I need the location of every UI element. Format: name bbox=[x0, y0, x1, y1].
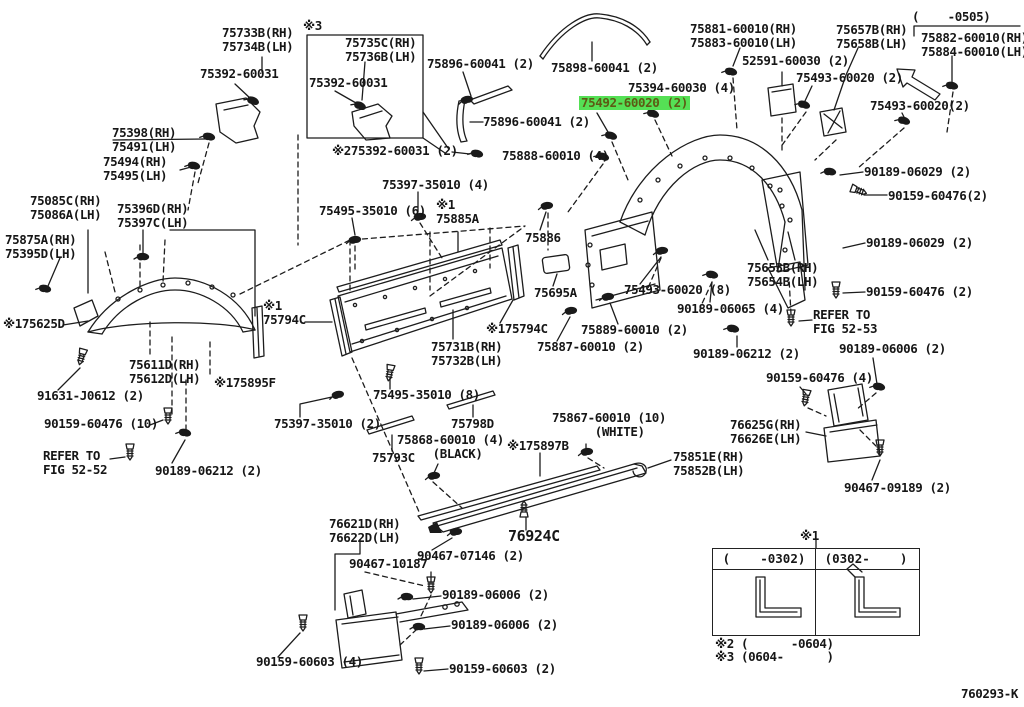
mark-175897: ※175897B bbox=[507, 439, 569, 453]
parts-diagram-page: 75733B(RH) 75734B(LH)※375735C(RH) 75736B… bbox=[0, 0, 1024, 707]
part-75731: 75731B(RH) 75732B(LH) bbox=[431, 340, 502, 367]
mark-175625: ※175625D bbox=[3, 317, 65, 331]
part-90159-60476-4r: 90159-60476 (4) bbox=[766, 371, 873, 385]
part-75851: 75851E(RH) 75852B(LH) bbox=[673, 450, 744, 477]
part-75085: 75085C(RH) 75086A(LH) bbox=[30, 194, 101, 221]
part-75898: 75898-60041 (2) bbox=[551, 61, 658, 75]
part-76625: 76625G(RH) 76626E(LH) bbox=[730, 418, 801, 445]
part-75392-b: 75392-60031 bbox=[309, 76, 387, 90]
part-75798: 75798D bbox=[451, 417, 494, 431]
part-75397-35010-4: 75397-35010 (4) bbox=[382, 178, 489, 192]
part-90159-60603-4: 90159-60603 (4) bbox=[256, 655, 363, 669]
figure-code: 760293-K bbox=[961, 687, 1018, 701]
part-75493-8: 75493-60020 (8) bbox=[624, 283, 731, 297]
part-75495-35010-6: 75495-35010 (6) bbox=[319, 204, 426, 218]
part-90189-06006-b2: 90189-06006 (2) bbox=[451, 618, 558, 632]
part-75492-highlighted[interactable]: 75492-60020 (2) bbox=[579, 96, 690, 110]
part-75657: 75657B(RH) 75658B(LH) bbox=[836, 23, 907, 50]
part-76621: 76621D(RH) 76622D(LH) bbox=[329, 517, 400, 544]
spec-note-3: ※3 (0604- ) bbox=[715, 650, 834, 664]
spec-col-left: ( -0302) bbox=[713, 551, 815, 566]
part-75875: 75875A(RH) 75395D(LH) bbox=[5, 233, 76, 260]
part-90189-06029-a: 90189-06029 (2) bbox=[864, 165, 971, 179]
part-75611: 75611D(RH) 75612D(LH) bbox=[129, 358, 200, 385]
part-75896-a: 75896-60041 (2) bbox=[427, 57, 534, 71]
spec-col-right: (0302- ) bbox=[815, 551, 917, 566]
mark-175895: ※175895F bbox=[214, 376, 276, 390]
range-0505: ( -0505) bbox=[912, 10, 990, 24]
part-76924: 76924C bbox=[508, 528, 560, 544]
part-90467-07146: 90467-07146 (2) bbox=[417, 549, 524, 563]
part-75794-left: ※1 75794C bbox=[263, 299, 306, 326]
part-75733: 75733B(RH) 75734B(LH) bbox=[222, 26, 293, 53]
part-75394: 75394-60030 (4) bbox=[628, 81, 735, 95]
part-91631: 91631-J0612 (2) bbox=[37, 389, 144, 403]
part-75882: 75882-60010(RH) 75884-60010(LH) bbox=[921, 31, 1024, 58]
spec-table: ( -0302) (0302- ) bbox=[712, 548, 920, 636]
part-75493-b: 75493-60020(2) bbox=[870, 99, 970, 113]
spec-table-header-rule bbox=[713, 569, 919, 570]
part-75397-35010-2: 75397-35010 (2) bbox=[274, 417, 381, 431]
part-90159-60603-2: 90159-60603 (2) bbox=[449, 662, 556, 676]
part-275392: ※275392-60031 (2) bbox=[332, 144, 458, 158]
part-75495-35010-8: 75495-35010 (8) bbox=[373, 388, 480, 402]
part-90189-06065: 90189-06065 (4) bbox=[677, 302, 784, 316]
part-75793: 75793C bbox=[372, 451, 415, 465]
part-52591: 52591-60030 (2) bbox=[742, 54, 849, 68]
part-75889: 75889-60010 (2) bbox=[581, 323, 688, 337]
part-75896-b: 75896-60041 (2) bbox=[483, 115, 590, 129]
part-90159-60476-a: 90159-60476(2) bbox=[888, 189, 988, 203]
part-90189-06006-r: 90189-06006 (2) bbox=[839, 342, 946, 356]
refer-fig-52-52: REFER TO FIG 52-52 bbox=[43, 449, 107, 476]
part-90189-06212-r: 90189-06212 (2) bbox=[693, 347, 800, 361]
part-75398: 75398(RH) 75491(LH) bbox=[112, 126, 176, 153]
part-75396: 75396D(RH) 75397C(LH) bbox=[117, 202, 188, 229]
part-90189-06029-b: 90189-06029 (2) bbox=[866, 236, 973, 250]
part-90467-09189: 90467-09189 (2) bbox=[844, 481, 951, 495]
part-75494: 75494(RH) 75495(LH) bbox=[103, 155, 167, 182]
part-75887: 75887-60010 (2) bbox=[537, 340, 644, 354]
part-90467-10187: 90467-10187 bbox=[349, 557, 427, 571]
part-75886: 75886 bbox=[525, 231, 561, 245]
part-90189-06212-l: 90189-06212 (2) bbox=[155, 464, 262, 478]
spec-table-mark: ※1 bbox=[800, 529, 819, 543]
part-75695: 75695A bbox=[534, 286, 577, 300]
part-75735: 75735C(RH) 75736B(LH) bbox=[345, 36, 416, 63]
part-90159-60476-b: 90159-60476 (2) bbox=[866, 285, 973, 299]
part-75885: ※1 75885A bbox=[436, 198, 479, 225]
part-90159-60476-10: 90159-60476 (10) bbox=[44, 417, 158, 431]
part-75881: 75881-60010(RH) 75883-60010(LH) bbox=[690, 22, 797, 49]
part-175794-mid: ※175794C bbox=[486, 322, 548, 336]
mark-3: ※3 bbox=[303, 19, 322, 33]
part-75888: 75888-60010 (4) bbox=[502, 149, 609, 163]
part-75493-a: 75493-60020 (2) bbox=[796, 71, 903, 85]
part-75653: 75653B(RH) 75654B(LH) bbox=[747, 261, 818, 288]
refer-fig-52-53: REFER TO FIG 52-53 bbox=[813, 308, 877, 335]
part-75867: 75867-60010 (10) (WHITE) bbox=[552, 411, 666, 438]
part-75392-a: 75392-60031 bbox=[200, 67, 278, 81]
part-90189-06006-b1: 90189-06006 (2) bbox=[442, 588, 549, 602]
